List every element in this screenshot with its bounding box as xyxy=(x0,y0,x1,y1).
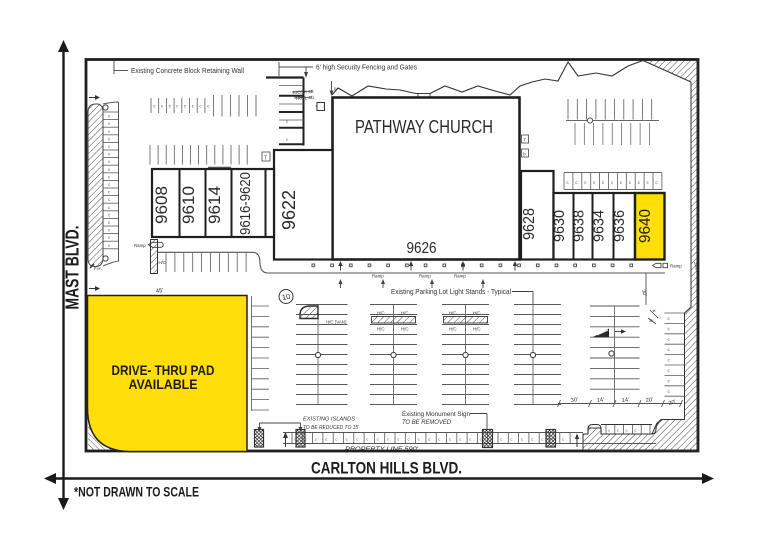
svg-text:MAST BLVD.: MAST BLVD. xyxy=(63,226,83,310)
svg-text:c: c xyxy=(356,437,358,442)
svg-text:H/C: H/C xyxy=(473,327,481,332)
svg-text:c: c xyxy=(286,137,288,142)
svg-text:c: c xyxy=(286,119,288,124)
svg-text:c: c xyxy=(335,437,337,442)
svg-text:H/C: H/C xyxy=(377,311,385,316)
svg-text:Existing Monument Sign: Existing Monument Sign xyxy=(402,411,470,418)
svg-text:c: c xyxy=(459,437,461,442)
svg-text:14': 14' xyxy=(596,397,604,404)
svg-text:CARLTON HILLS BLVD.: CARLTON HILLS BLVD. xyxy=(311,459,462,478)
svg-text:AVAILABLE: AVAILABLE xyxy=(129,376,198,392)
svg-text:Ramp: Ramp xyxy=(454,274,466,279)
svg-text:c: c xyxy=(608,428,610,433)
svg-text:TO BE REDUCED TO 15': TO BE REDUCED TO 15' xyxy=(303,425,360,431)
svg-text:F.H.: F.H. xyxy=(94,266,102,271)
svg-text:6' high Security Fencing and G: 6' high Security Fencing and Gates xyxy=(316,65,417,72)
svg-text:20': 20' xyxy=(645,397,653,404)
svg-text:c: c xyxy=(634,428,636,433)
svg-text:c: c xyxy=(325,437,327,442)
svg-text:H/C: H/C xyxy=(473,311,481,316)
svg-text:H/C: H/C xyxy=(159,260,167,265)
svg-text:9634: 9634 xyxy=(591,210,608,242)
svg-text:T: T xyxy=(264,156,267,162)
svg-text:H/C: H/C xyxy=(377,327,385,332)
svg-text:45': 45' xyxy=(155,288,164,295)
svg-text:c: c xyxy=(315,437,317,442)
svg-text:c: c xyxy=(377,437,379,442)
svg-text:PATHWAY CHURCH: PATHWAY CHURCH xyxy=(355,117,493,137)
svg-text:c: c xyxy=(617,428,619,433)
svg-text:c: c xyxy=(366,437,368,442)
svg-text:Ramp: Ramp xyxy=(372,274,384,279)
svg-text:H/C (VAN): H/C (VAN) xyxy=(326,320,347,325)
svg-text:9628: 9628 xyxy=(521,208,538,240)
svg-text:c: c xyxy=(469,437,471,442)
svg-text:*NOT DRAWN TO SCALE: *NOT DRAWN TO SCALE xyxy=(74,484,199,500)
svg-text:c: c xyxy=(449,437,451,442)
svg-text:9614: 9614 xyxy=(205,186,224,224)
svg-text:c: c xyxy=(387,437,389,442)
svg-text:H/C: H/C xyxy=(449,311,457,316)
svg-text:PROPERTY LINE 590': PROPERTY LINE 590' xyxy=(345,446,419,453)
svg-text:9622: 9622 xyxy=(279,190,299,230)
svg-text:c: c xyxy=(346,437,348,442)
svg-text:c: c xyxy=(626,428,628,433)
svg-text:c: c xyxy=(521,437,523,442)
svg-text:9626: 9626 xyxy=(407,240,437,257)
svg-text:c: c xyxy=(562,437,564,442)
svg-text:14': 14' xyxy=(621,397,629,404)
svg-text:Existing Parking Lot Light Sta: Existing Parking Lot Light Stands - Typi… xyxy=(391,289,511,296)
svg-text:H/C: H/C xyxy=(401,327,409,332)
svg-text:T: T xyxy=(523,138,526,143)
svg-text:9630: 9630 xyxy=(551,210,568,242)
svg-text:H/C: H/C xyxy=(449,327,457,332)
svg-text:H/C: H/C xyxy=(401,311,409,316)
svg-text:c: c xyxy=(397,437,399,442)
svg-text:c: c xyxy=(511,437,513,442)
svg-text:c: c xyxy=(408,437,410,442)
svg-text:Existing Concrete Block Retain: Existing Concrete Block Retaining Wall xyxy=(131,68,244,75)
svg-text:9638: 9638 xyxy=(571,210,588,242)
svg-text:b: b xyxy=(523,152,526,157)
svg-text:9608: 9608 xyxy=(152,186,171,224)
svg-text:Ramp: Ramp xyxy=(419,274,431,279)
svg-text:c: c xyxy=(531,437,533,442)
svg-text:c: c xyxy=(438,437,440,442)
svg-text:c: c xyxy=(428,437,430,442)
svg-text:30': 30' xyxy=(570,397,578,404)
svg-text:9640: 9640 xyxy=(637,209,654,243)
svg-text:EXISTING ISLANDS: EXISTING ISLANDS xyxy=(303,417,355,423)
svg-text:c: c xyxy=(418,437,420,442)
svg-text:9616-9620: 9616-9620 xyxy=(237,172,254,235)
svg-text:9636: 9636 xyxy=(611,210,628,242)
svg-text:c: c xyxy=(480,437,482,442)
svg-text:c: c xyxy=(500,437,502,442)
svg-text:TO BE REMOVED: TO BE REMOVED xyxy=(402,419,451,426)
svg-text:c: c xyxy=(541,437,543,442)
svg-text:Ramp: Ramp xyxy=(134,243,146,248)
svg-text:9610: 9610 xyxy=(179,186,198,224)
svg-text:Ramp: Ramp xyxy=(670,264,682,269)
